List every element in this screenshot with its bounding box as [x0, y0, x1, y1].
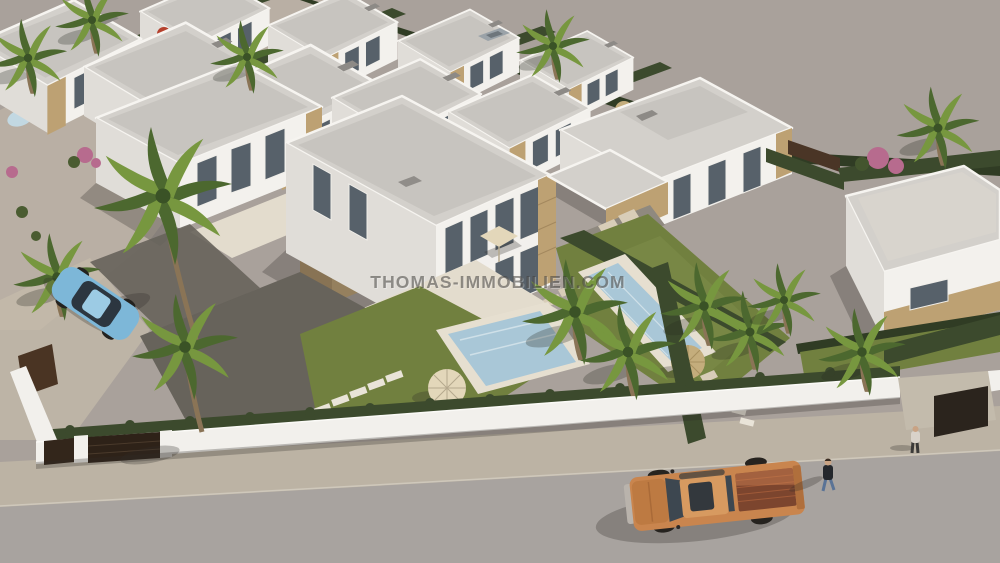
- watermark: THOMAS-IMMOBILIEN.COM THOMAS-IMMOBILIEN.…: [370, 272, 626, 293]
- pedestrian-head: [913, 426, 919, 432]
- stone-corner-pillar: [538, 172, 556, 288]
- truck-sunroof: [688, 481, 715, 511]
- rendering-canvas: THOMAS-IMMOBILIEN.COM THOMAS-IMMOBILIEN.…: [0, 0, 1000, 563]
- facade-window: [708, 159, 726, 206]
- facade-window: [231, 142, 251, 193]
- pedestrian-torso: [823, 465, 833, 480]
- facade-window: [673, 173, 691, 220]
- villa-development-rendering: THOMAS-IMMOBILIEN.COM THOMAS-IMMOBILIEN.…: [0, 0, 1000, 563]
- pedestrian-torso: [911, 431, 920, 443]
- facade-window: [265, 128, 285, 180]
- watermark-text: THOMAS-IMMOBILIEN.COM: [370, 272, 625, 292]
- facade-window: [743, 146, 761, 193]
